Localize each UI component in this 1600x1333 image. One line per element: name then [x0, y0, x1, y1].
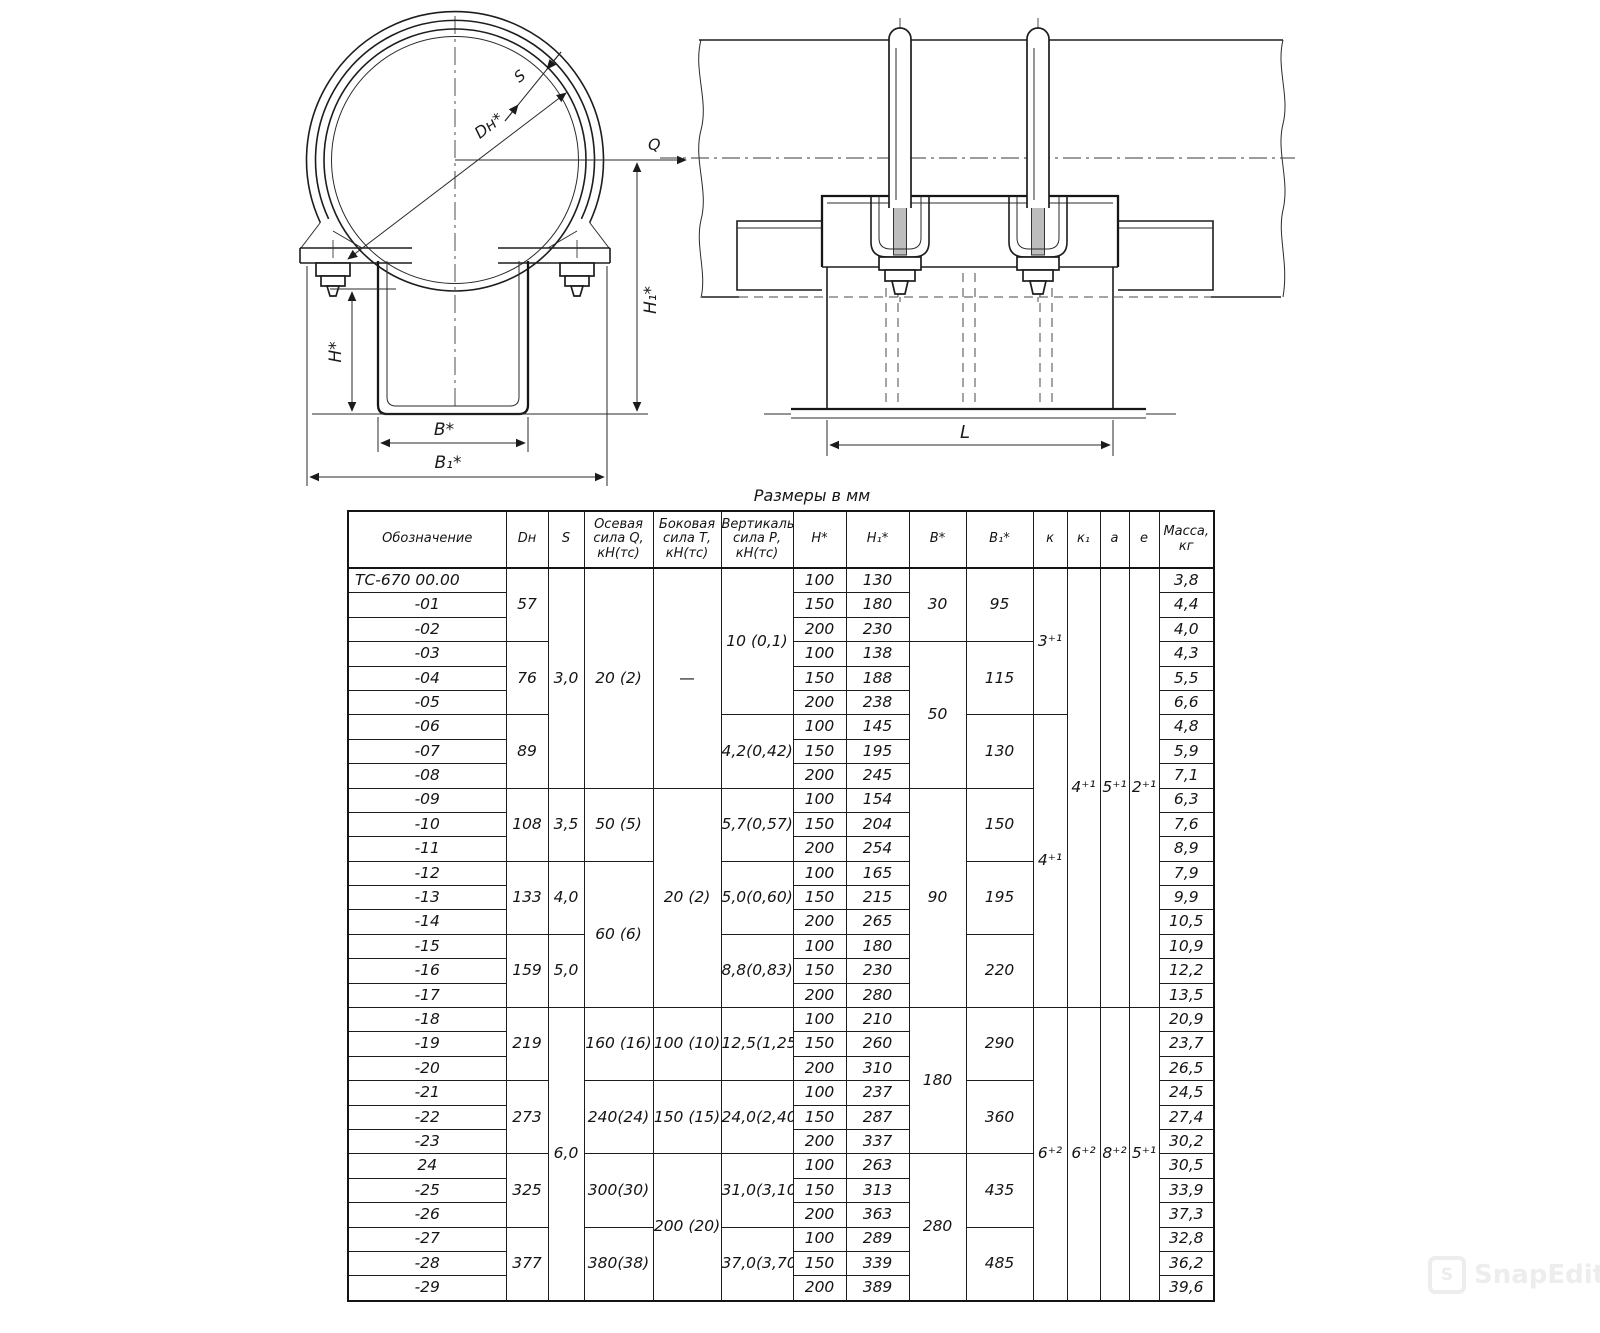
cell-h1: 210: [846, 1008, 909, 1032]
cell-q: 160 (16): [584, 1008, 653, 1081]
cell-h: 100: [793, 934, 846, 958]
cell-h: 100: [793, 568, 846, 593]
cell-dn: 325: [506, 1154, 548, 1227]
cell-m: 6,6: [1159, 690, 1214, 714]
cell-b: 280: [909, 1154, 966, 1301]
cell-h1: 289: [846, 1227, 909, 1251]
cell-h1: 363: [846, 1203, 909, 1227]
cell-h1: 180: [846, 934, 909, 958]
cell-h1: 245: [846, 764, 909, 788]
cell-e: 5⁺¹: [1129, 1008, 1159, 1301]
force-q-arrow: Q: [455, 135, 686, 160]
channel-support: [312, 261, 648, 414]
cell-b1: 115: [966, 642, 1033, 715]
cell-h1: 230: [846, 617, 909, 641]
cell-obz: -25: [348, 1178, 506, 1202]
col-header-a: а: [1100, 511, 1129, 568]
dim-label-s: S: [510, 66, 529, 86]
cell-obz: -04: [348, 666, 506, 690]
cell-h: 200: [793, 690, 846, 714]
cell-t: 100 (10): [653, 1008, 721, 1081]
cell-b: 90: [909, 788, 966, 1008]
cell-k: 4⁺¹: [1033, 715, 1067, 1008]
cell-a: 8⁺²: [1100, 1008, 1129, 1301]
cell-dn: 377: [506, 1227, 548, 1301]
cell-b1: 485: [966, 1227, 1033, 1301]
cell-obz: -02: [348, 617, 506, 641]
cell-m: 5,9: [1159, 739, 1214, 763]
cell-h: 200: [793, 1203, 846, 1227]
cell-h: 200: [793, 617, 846, 641]
cell-dn: 57: [506, 568, 548, 642]
cell-m: 4,8: [1159, 715, 1214, 739]
cell-b1: 360: [966, 1081, 1033, 1154]
cell-m: 27,4: [1159, 1105, 1214, 1129]
cell-obz: -03: [348, 642, 506, 666]
cell-obz: -12: [348, 861, 506, 885]
col-header-p: Вертикальная сила Р, кН(тс): [721, 511, 793, 568]
cell-s: 3,5: [548, 788, 584, 861]
dim-l: L: [827, 420, 1113, 456]
cell-obz: -11: [348, 837, 506, 861]
col-header-h: Н*: [793, 511, 846, 568]
cell-q: 20 (2): [584, 568, 653, 788]
table-title: Размеры в мм: [712, 486, 912, 505]
cell-h1: 263: [846, 1154, 909, 1178]
cell-h: 100: [793, 1008, 846, 1032]
cell-t: 200 (20): [653, 1154, 721, 1301]
cell-p: 4,2(0,42): [721, 715, 793, 788]
cell-obz: -17: [348, 983, 506, 1007]
sleeve-right: [1118, 221, 1213, 290]
dim-label-h: Н*: [326, 341, 346, 362]
cell-m: 12,2: [1159, 959, 1214, 983]
side-view-drawing: L: [655, 5, 1305, 475]
col-header-s: S: [548, 511, 584, 568]
cell-h: 100: [793, 1227, 846, 1251]
cell-h: 100: [793, 1081, 846, 1105]
watermark: S SnapEdit: [1428, 1256, 1600, 1294]
base-plate: [764, 409, 1176, 418]
cell-q: 50 (5): [584, 788, 653, 861]
dim-h: Н*: [326, 289, 396, 411]
cell-obz: -21: [348, 1081, 506, 1105]
dim-b: В*: [378, 417, 528, 452]
cell-p: 5,0(0,60): [721, 861, 793, 934]
dim-label-l: L: [960, 422, 970, 443]
cell-m: 24,5: [1159, 1081, 1214, 1105]
cell-q: 300(30): [584, 1154, 653, 1227]
cell-h: 150: [793, 1032, 846, 1056]
cell-h: 100: [793, 788, 846, 812]
clamp-body: [822, 196, 1118, 409]
cell-obz: -05: [348, 690, 506, 714]
bolt-right: [560, 240, 594, 302]
cell-h1: 238: [846, 690, 909, 714]
cell-p: 31,0(3,10): [721, 1154, 793, 1227]
cell-h1: 389: [846, 1276, 909, 1301]
cell-h: 100: [793, 1154, 846, 1178]
cell-h1: 165: [846, 861, 909, 885]
cell-h: 200: [793, 837, 846, 861]
cell-h: 150: [793, 886, 846, 910]
cell-h1: 130: [846, 568, 909, 593]
dim-label-b: В*: [434, 420, 454, 440]
cell-obz: -20: [348, 1056, 506, 1080]
cell-h: 100: [793, 642, 846, 666]
cell-b1: 195: [966, 861, 1033, 934]
cell-h1: 237: [846, 1081, 909, 1105]
watermark-text: SnapEdit: [1474, 1260, 1600, 1290]
cell-dn: 76: [506, 642, 548, 715]
col-header-b1: В₁*: [966, 511, 1033, 568]
cell-h1: 280: [846, 983, 909, 1007]
watermark-icon: S: [1428, 1256, 1466, 1294]
cell-h1: 180: [846, 593, 909, 617]
cell-obz: 24: [348, 1154, 506, 1178]
bolt-left: [316, 240, 350, 302]
cell-obz: -23: [348, 1129, 506, 1153]
cell-s: 6,0: [548, 1008, 584, 1301]
cell-m: 36,2: [1159, 1251, 1214, 1275]
col-header-e: е: [1129, 511, 1159, 568]
cell-h1: 310: [846, 1056, 909, 1080]
col-header-m: Масса, кг: [1159, 511, 1214, 568]
cell-h1: 337: [846, 1129, 909, 1153]
cell-m: 39,6: [1159, 1276, 1214, 1301]
cell-h: 150: [793, 1105, 846, 1129]
cell-h1: 260: [846, 1032, 909, 1056]
cell-t: 20 (2): [653, 788, 721, 1008]
cell-s: 3,0: [548, 568, 584, 788]
cell-p: 37,0(3,70): [721, 1227, 793, 1301]
cell-m: 30,2: [1159, 1129, 1214, 1153]
cell-p: 8,8(0,83): [721, 934, 793, 1007]
cell-m: 7,9: [1159, 861, 1214, 885]
cell-dn: 159: [506, 934, 548, 1007]
u-bolt-right: [1009, 18, 1067, 302]
cell-m: 37,3: [1159, 1203, 1214, 1227]
cell-h1: 188: [846, 666, 909, 690]
cell-m: 4,4: [1159, 593, 1214, 617]
cell-obz: -09: [348, 788, 506, 812]
cell-q: 60 (6): [584, 861, 653, 1007]
cell-h1: 254: [846, 837, 909, 861]
cell-h: 200: [793, 1056, 846, 1080]
cell-obz: -27: [348, 1227, 506, 1251]
cell-obz: -16: [348, 959, 506, 983]
cell-b1: 435: [966, 1154, 1033, 1227]
col-header-k1: к₁: [1067, 511, 1100, 568]
cell-q: 240(24): [584, 1081, 653, 1154]
dim-s: S: [505, 52, 561, 121]
cell-m: 4,0: [1159, 617, 1214, 641]
cell-obz: -29: [348, 1276, 506, 1301]
cell-h1: 313: [846, 1178, 909, 1202]
cell-p: 10 (0,1): [721, 568, 793, 715]
cell-m: 10,9: [1159, 934, 1214, 958]
table-row: -182196,0160 (16)100 (10)12,5(1,25)10021…: [348, 1008, 1214, 1032]
col-header-obz: Обозначение: [348, 511, 506, 568]
cell-obz: -14: [348, 910, 506, 934]
cell-b1: 220: [966, 934, 1033, 1007]
cell-p: 24,0(2,40): [721, 1081, 793, 1154]
cell-p: 5,7(0,57): [721, 788, 793, 861]
dim-label-b1: В₁*: [435, 453, 462, 473]
cell-p: 12,5(1,25): [721, 1008, 793, 1081]
cell-h: 150: [793, 1251, 846, 1275]
hidden-edges: [886, 273, 1052, 406]
cell-m: 7,1: [1159, 764, 1214, 788]
cell-m: 5,5: [1159, 666, 1214, 690]
cell-m: 33,9: [1159, 1178, 1214, 1202]
cell-obz: -15: [348, 934, 506, 958]
cell-obz: -07: [348, 739, 506, 763]
cell-m: 30,5: [1159, 1154, 1214, 1178]
cell-s: 5,0: [548, 934, 584, 1007]
cell-h: 100: [793, 861, 846, 885]
cell-k: 3⁺¹: [1033, 568, 1067, 715]
u-bolt-left: [871, 18, 929, 302]
dim-h1: Н₁*: [595, 160, 662, 411]
cell-m: 13,5: [1159, 983, 1214, 1007]
cell-obz: -22: [348, 1105, 506, 1129]
cell-m: 26,5: [1159, 1056, 1214, 1080]
cell-k1: 6⁺²: [1067, 1008, 1100, 1301]
cell-m: 32,8: [1159, 1227, 1214, 1251]
cell-m: 23,7: [1159, 1032, 1214, 1056]
cell-h: 150: [793, 1178, 846, 1202]
cell-obz: -18: [348, 1008, 506, 1032]
cell-h: 200: [793, 764, 846, 788]
cell-b: 50: [909, 642, 966, 788]
dim-dn: Dн*: [348, 93, 566, 259]
cell-h: 200: [793, 910, 846, 934]
cell-m: 4,3: [1159, 642, 1214, 666]
cell-dn: 108: [506, 788, 548, 861]
cell-b: 30: [909, 568, 966, 642]
cell-k1: 4⁺¹: [1067, 568, 1100, 1008]
cell-obz: -06: [348, 715, 506, 739]
cell-obz: -10: [348, 812, 506, 836]
cell-b1: 95: [966, 568, 1033, 642]
cell-e: 2⁺¹: [1129, 568, 1159, 1008]
document-page: Н* Н₁* В* В₁* Dн*: [0, 0, 1600, 1333]
cell-h: 150: [793, 593, 846, 617]
cell-t: 150 (15): [653, 1081, 721, 1154]
dimensions-table: ОбозначениеDнSОсевая сила Q, кН(тс)Боков…: [347, 510, 1215, 1302]
cell-obz: -13: [348, 886, 506, 910]
cell-obz: -19: [348, 1032, 506, 1056]
cell-m: 20,9: [1159, 1008, 1214, 1032]
cell-b1: 290: [966, 1008, 1033, 1081]
cell-h1: 145: [846, 715, 909, 739]
table-row: ТС-670 00.00573,020 (2)—10 (0,1)10013030…: [348, 568, 1214, 593]
cell-dn: 273: [506, 1081, 548, 1154]
cell-h: 100: [793, 715, 846, 739]
cell-h1: 265: [846, 910, 909, 934]
cell-m: 10,5: [1159, 910, 1214, 934]
cell-dn: 219: [506, 1008, 548, 1081]
cell-h1: 204: [846, 812, 909, 836]
cell-h1: 215: [846, 886, 909, 910]
cell-h: 200: [793, 1276, 846, 1301]
cell-h1: 138: [846, 642, 909, 666]
cell-h: 200: [793, 983, 846, 1007]
col-header-k: к: [1033, 511, 1067, 568]
cell-t: —: [653, 568, 721, 788]
col-header-dn: Dн: [506, 511, 548, 568]
cell-m: 6,3: [1159, 788, 1214, 812]
cell-obz: -26: [348, 1203, 506, 1227]
cell-b: 180: [909, 1008, 966, 1154]
col-header-b: В*: [909, 511, 966, 568]
cell-h1: 195: [846, 739, 909, 763]
cell-h: 150: [793, 812, 846, 836]
cell-b1: 130: [966, 715, 1033, 788]
pipe-side: [660, 40, 1295, 298]
cell-dn: 89: [506, 715, 548, 788]
dim-label-dn: Dн*: [471, 109, 507, 143]
cell-q: 380(38): [584, 1227, 653, 1301]
front-view-drawing: Н* Н₁* В* В₁* Dн*: [280, 5, 700, 505]
col-header-h1: Н₁*: [846, 511, 909, 568]
cell-h: 150: [793, 739, 846, 763]
cell-m: 7,6: [1159, 812, 1214, 836]
cell-h1: 287: [846, 1105, 909, 1129]
cell-obz: -28: [348, 1251, 506, 1275]
cell-m: 9,9: [1159, 886, 1214, 910]
cell-obz: -01: [348, 593, 506, 617]
cell-dn: 133: [506, 861, 548, 934]
cell-m: 8,9: [1159, 837, 1214, 861]
cell-h: 150: [793, 959, 846, 983]
cell-s: 4,0: [548, 861, 584, 934]
cell-h1: 339: [846, 1251, 909, 1275]
cell-k: 6⁺²: [1033, 1008, 1067, 1301]
sleeve-left: [737, 221, 822, 290]
cell-obz: -08: [348, 764, 506, 788]
cell-a: 5⁺¹: [1100, 568, 1129, 1008]
cell-obz: ТС-670 00.00: [348, 568, 506, 593]
cell-m: 3,8: [1159, 568, 1214, 593]
col-header-t: Боковая сила Т, кН(тс): [653, 511, 721, 568]
cell-h: 200: [793, 1129, 846, 1153]
table-header-row: ОбозначениеDнSОсевая сила Q, кН(тс)Боков…: [348, 511, 1214, 568]
col-header-q: Осевая сила Q, кН(тс): [584, 511, 653, 568]
cell-b1: 150: [966, 788, 1033, 861]
cell-h1: 154: [846, 788, 909, 812]
cell-h: 150: [793, 666, 846, 690]
cell-h1: 230: [846, 959, 909, 983]
